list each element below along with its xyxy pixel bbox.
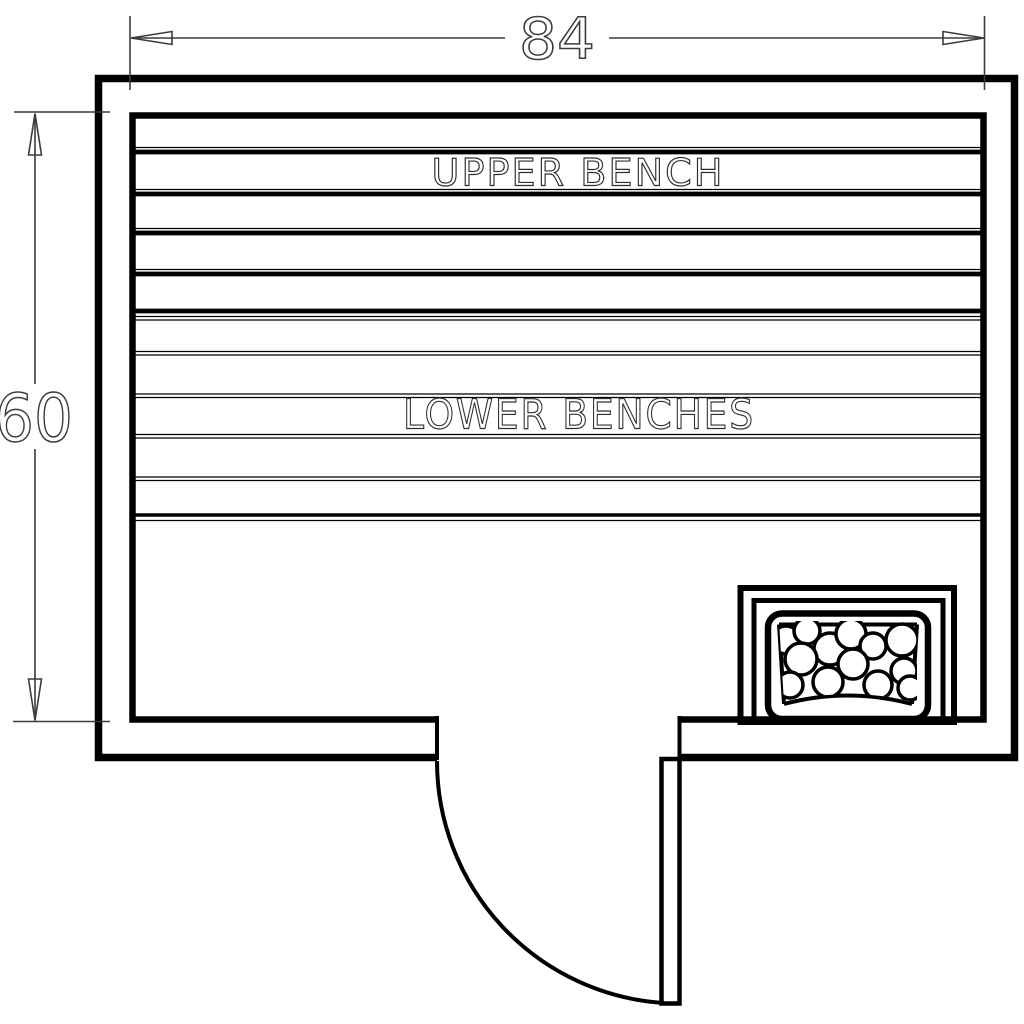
width-dimension-label: 84 [519, 7, 595, 73]
rock [886, 624, 918, 656]
depth-dimension-label: 60 [0, 380, 73, 457]
bench-labels: UPPER BENCH LOWER BENCHES [403, 151, 755, 439]
heater-rocks [772, 618, 922, 700]
rock-basket-front-curve [784, 696, 912, 705]
heater [741, 588, 955, 722]
lower-benches-label: LOWER BENCHES [403, 391, 755, 439]
rock [898, 676, 922, 700]
door [437, 759, 680, 1004]
upper-bench-label: UPPER BENCH [432, 151, 725, 195]
door-leaf [662, 759, 680, 1004]
rock [813, 667, 843, 697]
dimension-left: 60 [0, 112, 110, 722]
door-swing-arc [437, 761, 664, 1003]
rock [785, 643, 817, 675]
sauna-floor-plan-drawing: UPPER BENCH LOWER BENCHES [0, 0, 1024, 1024]
floor-plan-canvas: UPPER BENCH LOWER BENCHES [0, 0, 1024, 1024]
